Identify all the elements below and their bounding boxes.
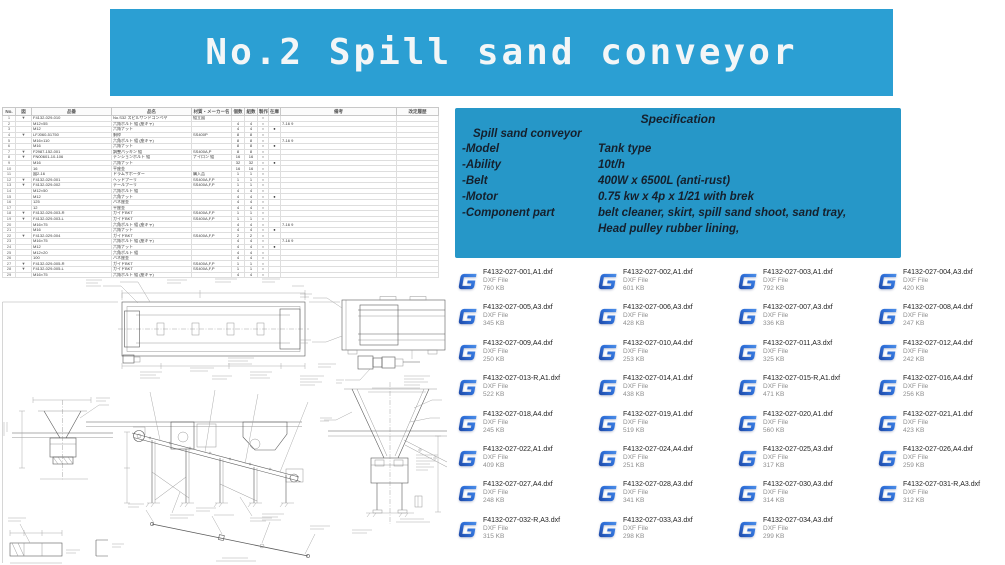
- file-size: 317 KB: [763, 462, 833, 470]
- file-size: 471 KB: [763, 391, 840, 399]
- parts-col-header: 個数: [232, 108, 245, 116]
- file-size: 560 KB: [763, 427, 833, 435]
- draftsight-g-icon: [874, 412, 897, 435]
- dxf-file-item[interactable]: F4132-027-030,A3.dxf DXF File 314 KB: [730, 480, 868, 515]
- file-type-label: DXF File: [623, 312, 693, 320]
- draftsight-g-icon: [594, 447, 617, 470]
- draftsight-g-icon: [874, 376, 897, 399]
- file-name: F4132-027-018,A4.dxf: [483, 410, 553, 419]
- file-size: 250 KB: [483, 356, 553, 364]
- file-size: 242 KB: [903, 356, 973, 364]
- file-type-label: DXF File: [623, 277, 693, 285]
- dxf-file-item[interactable]: F4132-027-010,A4.dxf DXF File 253 KB: [590, 339, 728, 374]
- file-size: 601 KB: [623, 285, 693, 293]
- draftsight-g-icon: [734, 447, 757, 470]
- spec-row: -Ability10t/h: [462, 157, 901, 173]
- file-size: 336 KB: [763, 320, 833, 328]
- file-type-label: DXF File: [903, 312, 973, 320]
- slide-page: No.2 Spill sand conveyor No.図品番品名材質・メーカー…: [0, 0, 1005, 565]
- file-type-label: DXF File: [623, 525, 693, 533]
- spec-label: -Ability: [462, 157, 598, 173]
- draftsight-g-icon: [454, 482, 477, 505]
- left-section-view: [4, 397, 113, 480]
- spec-box: Specification Spill sand conveyor -Model…: [455, 108, 901, 258]
- file-type-label: DXF File: [483, 348, 553, 356]
- parts-col-header: 備考: [281, 108, 397, 116]
- file-name: F4132-027-009,A4.dxf: [483, 339, 553, 348]
- file-name: F4132-027-024,A4.dxf: [623, 445, 693, 454]
- draftsight-g-icon: [874, 305, 897, 328]
- file-size: 247 KB: [903, 320, 973, 328]
- file-size: 248 KB: [483, 497, 553, 505]
- dxf-file-item[interactable]: F4132-027-009,A4.dxf DXF File 250 KB: [450, 339, 588, 374]
- file-name: F4132-027-031-R,A3.dxf: [903, 480, 980, 489]
- draftsight-g-icon: [594, 341, 617, 364]
- dxf-file-item[interactable]: F4132-027-027,A4.dxf DXF File 248 KB: [450, 480, 588, 515]
- dxf-file-item[interactable]: F4132-027-018,A4.dxf DXF File 245 KB: [450, 410, 588, 445]
- file-type-label: DXF File: [623, 454, 693, 462]
- draftsight-g-icon: [734, 270, 757, 293]
- file-type-label: DXF File: [483, 454, 553, 462]
- dxf-file-item[interactable]: F4132-027-020,A1.dxf DXF File 560 KB: [730, 410, 868, 445]
- head-drive-detail-view: [300, 294, 445, 392]
- file-type-label: DXF File: [623, 348, 693, 356]
- file-name: F4132-027-008,A4.dxf: [903, 303, 973, 312]
- spec-row: -Belt400W x 6500L (anti-rust): [462, 173, 901, 189]
- draftsight-g-icon: [594, 376, 617, 399]
- dxf-file-grid: F4132-027-001,A1.dxf DXF File 760 KB F41…: [450, 268, 1002, 551]
- file-type-label: DXF File: [763, 525, 833, 533]
- file-size: 792 KB: [763, 285, 833, 293]
- file-type-label: DXF File: [483, 277, 553, 285]
- file-name: F4132-027-019,A1.dxf: [623, 410, 693, 419]
- file-name: F4132-027-028,A3.dxf: [623, 480, 693, 489]
- dxf-file-item[interactable]: F4132-027-022,A1.dxf DXF File 409 KB: [450, 445, 588, 480]
- file-name: F4132-027-005,A3.dxf: [483, 303, 553, 312]
- dxf-file-item[interactable]: F4132-027-005,A3.dxf DXF File 345 KB: [450, 303, 588, 338]
- file-name: F4132-027-027,A4.dxf: [483, 480, 553, 489]
- file-size: 423 KB: [903, 427, 973, 435]
- dxf-file-item[interactable]: F4132-027-011,A3.dxf DXF File 325 KB: [730, 339, 868, 374]
- dxf-file-item[interactable]: F4132-027-028,A3.dxf DXF File 341 KB: [590, 480, 728, 515]
- parts-table-body: 1▼F4132-029-010No.S32 スピルサンドコンベヤ組立図○2M12…: [3, 116, 439, 278]
- file-type-label: DXF File: [903, 419, 973, 427]
- parts-col-header: 在庫: [269, 108, 281, 116]
- draftsight-g-icon: [454, 412, 477, 435]
- file-name: F4132-027-001,A1.dxf: [483, 268, 553, 277]
- spec-value: 10t/h: [598, 157, 901, 173]
- bracket-detail: [8, 518, 124, 563]
- file-name: F4132-027-033,A3.dxf: [623, 516, 693, 525]
- file-type-label: DXF File: [903, 277, 973, 285]
- dxf-file-item[interactable]: F4132-027-007,A3.dxf DXF File 336 KB: [730, 303, 868, 338]
- file-size: 253 KB: [623, 356, 693, 364]
- dxf-file-item[interactable]: F4132-027-001,A1.dxf DXF File 760 KB: [450, 268, 588, 303]
- file-type-label: DXF File: [763, 454, 833, 462]
- draftsight-g-icon: [734, 376, 757, 399]
- parts-col-header: 製作: [258, 108, 269, 116]
- file-name: F4132-027-004,A3.dxf: [903, 268, 973, 277]
- file-name: F4132-027-026,A4.dxf: [903, 445, 973, 454]
- file-name: F4132-027-016,A4.dxf: [903, 374, 973, 383]
- title-banner: No.2 Spill sand conveyor: [110, 9, 893, 96]
- spec-title: Specification: [455, 108, 901, 126]
- file-size: 298 KB: [623, 533, 693, 541]
- dxf-file-item[interactable]: F4132-027-024,A4.dxf DXF File 251 KB: [590, 445, 728, 480]
- file-type-label: DXF File: [763, 383, 840, 391]
- draftsight-g-icon: [874, 270, 897, 293]
- file-name: F4132-027-002,A1.dxf: [623, 268, 693, 277]
- dxf-file-item[interactable]: F4132-027-031-R,A3.dxf DXF File 312 KB: [870, 480, 1005, 515]
- dxf-file-item[interactable]: F4132-027-021,A1.dxf DXF File 423 KB: [870, 410, 1005, 445]
- file-type-label: DXF File: [903, 348, 973, 356]
- parts-col-header: 図: [16, 108, 32, 116]
- file-name: F4132-027-034,A3.dxf: [763, 516, 833, 525]
- dxf-file-item[interactable]: F4132-027-002,A1.dxf DXF File 601 KB: [590, 268, 728, 303]
- file-name: F4132-027-013-R,A1.dxf: [483, 374, 560, 383]
- parts-table-header-row: No.図品番品名材質・メーカー名個数組数製作在庫備考改定履歴: [3, 108, 439, 116]
- parts-col-header: 組数: [245, 108, 258, 116]
- spec-row: -ModelTank type: [462, 141, 901, 157]
- file-size: 315 KB: [483, 533, 560, 541]
- dxf-file-item[interactable]: F4132-027-032-R,A3.dxf DXF File 315 KB: [450, 516, 588, 551]
- right-section-view: [320, 382, 447, 524]
- spec-row-continued: Head pulley rubber lining,: [462, 221, 901, 237]
- file-type-label: DXF File: [903, 454, 973, 462]
- draftsight-g-icon: [454, 447, 477, 470]
- file-type-label: DXF File: [903, 383, 973, 391]
- dxf-file-item[interactable]: F4132-027-006,A3.dxf DXF File 428 KB: [590, 303, 728, 338]
- file-size: 325 KB: [763, 356, 832, 364]
- file-name: F4132-027-012,A4.dxf: [903, 339, 973, 348]
- spec-value: 400W x 6500L (anti-rust): [598, 173, 901, 189]
- draftsight-g-icon: [734, 518, 757, 541]
- file-name: F4132-027-011,A3.dxf: [763, 339, 832, 348]
- draftsight-g-icon: [734, 341, 757, 364]
- spec-label: -Belt: [462, 173, 598, 189]
- dxf-file-item[interactable]: F4132-027-026,A4.dxf DXF File 259 KB: [870, 445, 1005, 480]
- draftsight-g-icon: [734, 482, 757, 505]
- draftsight-g-icon: [734, 305, 757, 328]
- file-size: 256 KB: [903, 391, 973, 399]
- file-type-label: DXF File: [483, 419, 553, 427]
- dxf-file-item[interactable]: F4132-027-019,A1.dxf DXF File 519 KB: [590, 410, 728, 445]
- file-name: F4132-027-025,A3.dxf: [763, 445, 833, 454]
- file-size: 299 KB: [763, 533, 833, 541]
- file-type-label: DXF File: [763, 277, 833, 285]
- file-type-label: DXF File: [483, 383, 560, 391]
- file-type-label: DXF File: [483, 525, 560, 533]
- draftsight-g-icon: [594, 270, 617, 293]
- file-type-label: DXF File: [483, 489, 553, 497]
- file-size: 428 KB: [623, 320, 693, 328]
- draftsight-g-icon: [594, 482, 617, 505]
- file-size: 409 KB: [483, 462, 553, 470]
- draftsight-g-icon: [594, 518, 617, 541]
- file-name: F4132-027-010,A4.dxf: [623, 339, 693, 348]
- file-size: 438 KB: [623, 391, 693, 399]
- dxf-file-item[interactable]: F4132-027-008,A4.dxf DXF File 247 KB: [870, 303, 1005, 338]
- file-type-label: DXF File: [623, 383, 693, 391]
- draftsight-g-icon: [734, 412, 757, 435]
- side-elevation-view: [86, 358, 336, 521]
- file-type-label: DXF File: [483, 312, 553, 320]
- parts-col-header: 材質・メーカー名: [192, 108, 232, 116]
- draftsight-g-icon: [454, 305, 477, 328]
- conveyor-cad-drawing: [0, 272, 447, 565]
- spec-label: -Component part: [462, 205, 598, 221]
- spec-value: Tank type: [598, 141, 901, 157]
- parts-col-header: 改定履歴: [397, 108, 439, 116]
- draftsight-g-icon: [874, 482, 897, 505]
- file-name: F4132-027-030,A3.dxf: [763, 480, 833, 489]
- file-name: F4132-027-007,A3.dxf: [763, 303, 833, 312]
- draftsight-g-icon: [454, 376, 477, 399]
- dxf-file-item[interactable]: F4132-027-012,A4.dxf DXF File 242 KB: [870, 339, 1005, 374]
- draftsight-g-icon: [874, 341, 897, 364]
- spec-value: belt cleaner, skirt, spill sand shoot, s…: [598, 205, 901, 221]
- spec-rows: -ModelTank type-Ability10t/h-Belt400W x …: [455, 140, 901, 237]
- file-name: F4132-027-003,A1.dxf: [763, 268, 833, 277]
- draftsight-g-icon: [454, 270, 477, 293]
- dxf-file-item[interactable]: F4132-027-003,A1.dxf DXF File 792 KB: [730, 268, 868, 303]
- dxf-file-item[interactable]: F4132-027-004,A3.dxf DXF File 420 KB: [870, 268, 1005, 303]
- file-type-label: DXF File: [763, 312, 833, 320]
- draftsight-g-icon: [594, 412, 617, 435]
- spec-label: -Motor: [462, 189, 598, 205]
- draftsight-g-icon: [454, 518, 477, 541]
- draftsight-g-icon: [454, 341, 477, 364]
- spec-value: Head pulley rubber lining,: [598, 221, 901, 237]
- dxf-file-item[interactable]: F4132-027-034,A3.dxf DXF File 299 KB: [730, 516, 868, 551]
- file-name: F4132-027-006,A3.dxf: [623, 303, 693, 312]
- file-type-label: DXF File: [763, 419, 833, 427]
- file-size: 522 KB: [483, 391, 560, 399]
- spec-row: -Component partbelt cleaner, skirt, spil…: [462, 205, 901, 221]
- file-size: 341 KB: [623, 497, 693, 505]
- file-name: F4132-027-021,A1.dxf: [903, 410, 973, 419]
- draftsight-g-icon: [594, 305, 617, 328]
- spec-row: -Motor0.75 kw x 4p x 1/21 with brek: [462, 189, 901, 205]
- file-type-label: DXF File: [623, 489, 693, 497]
- parts-col-header: 品番: [32, 108, 112, 116]
- parts-col-header: 品名: [112, 108, 192, 116]
- file-name: F4132-027-014,A1.dxf: [623, 374, 693, 383]
- page-title: No.2 Spill sand conveyor: [205, 32, 797, 73]
- spec-label: -Model: [462, 141, 598, 157]
- dxf-file-item[interactable]: F4132-027-014,A1.dxf DXF File 438 KB: [590, 374, 728, 409]
- file-size: 245 KB: [483, 427, 553, 435]
- file-size: 314 KB: [763, 497, 833, 505]
- file-type-label: DXF File: [903, 489, 980, 497]
- file-name: F4132-027-032-R,A3.dxf: [483, 516, 560, 525]
- dxf-file-item[interactable]: F4132-027-015-R,A1.dxf DXF File 471 KB: [730, 374, 868, 409]
- parts-table-wrap: No.図品番品名材質・メーカー名個数組数製作在庫備考改定履歴 1▼F4132-0…: [2, 107, 438, 278]
- parts-table: No.図品番品名材質・メーカー名個数組数製作在庫備考改定履歴 1▼F4132-0…: [2, 107, 439, 278]
- dxf-file-item[interactable]: F4132-027-013-R,A1.dxf DXF File 522 KB: [450, 374, 588, 409]
- file-size: 312 KB: [903, 497, 980, 505]
- file-type-label: DXF File: [763, 489, 833, 497]
- file-size: 259 KB: [903, 462, 973, 470]
- spec-subtitle: Spill sand conveyor: [455, 126, 901, 140]
- plan-view: [86, 279, 309, 369]
- dxf-file-item[interactable]: F4132-027-025,A3.dxf DXF File 317 KB: [730, 445, 868, 480]
- draftsight-g-icon: [874, 447, 897, 470]
- spec-value: 0.75 kw x 4p x 1/21 with brek: [598, 189, 901, 205]
- file-size: 519 KB: [623, 427, 693, 435]
- file-size: 345 KB: [483, 320, 553, 328]
- parts-col-header: No.: [3, 108, 16, 116]
- file-size: 420 KB: [903, 285, 973, 293]
- file-type-label: DXF File: [623, 419, 693, 427]
- file-name: F4132-027-020,A1.dxf: [763, 410, 833, 419]
- file-name: F4132-027-022,A1.dxf: [483, 445, 553, 454]
- dxf-file-item[interactable]: F4132-027-033,A3.dxf DXF File 298 KB: [590, 516, 728, 551]
- file-size: 251 KB: [623, 462, 693, 470]
- file-size: 760 KB: [483, 285, 553, 293]
- dxf-file-item[interactable]: F4132-027-016,A4.dxf DXF File 256 KB: [870, 374, 1005, 409]
- file-name: F4132-027-015-R,A1.dxf: [763, 374, 840, 383]
- file-type-label: DXF File: [763, 348, 832, 356]
